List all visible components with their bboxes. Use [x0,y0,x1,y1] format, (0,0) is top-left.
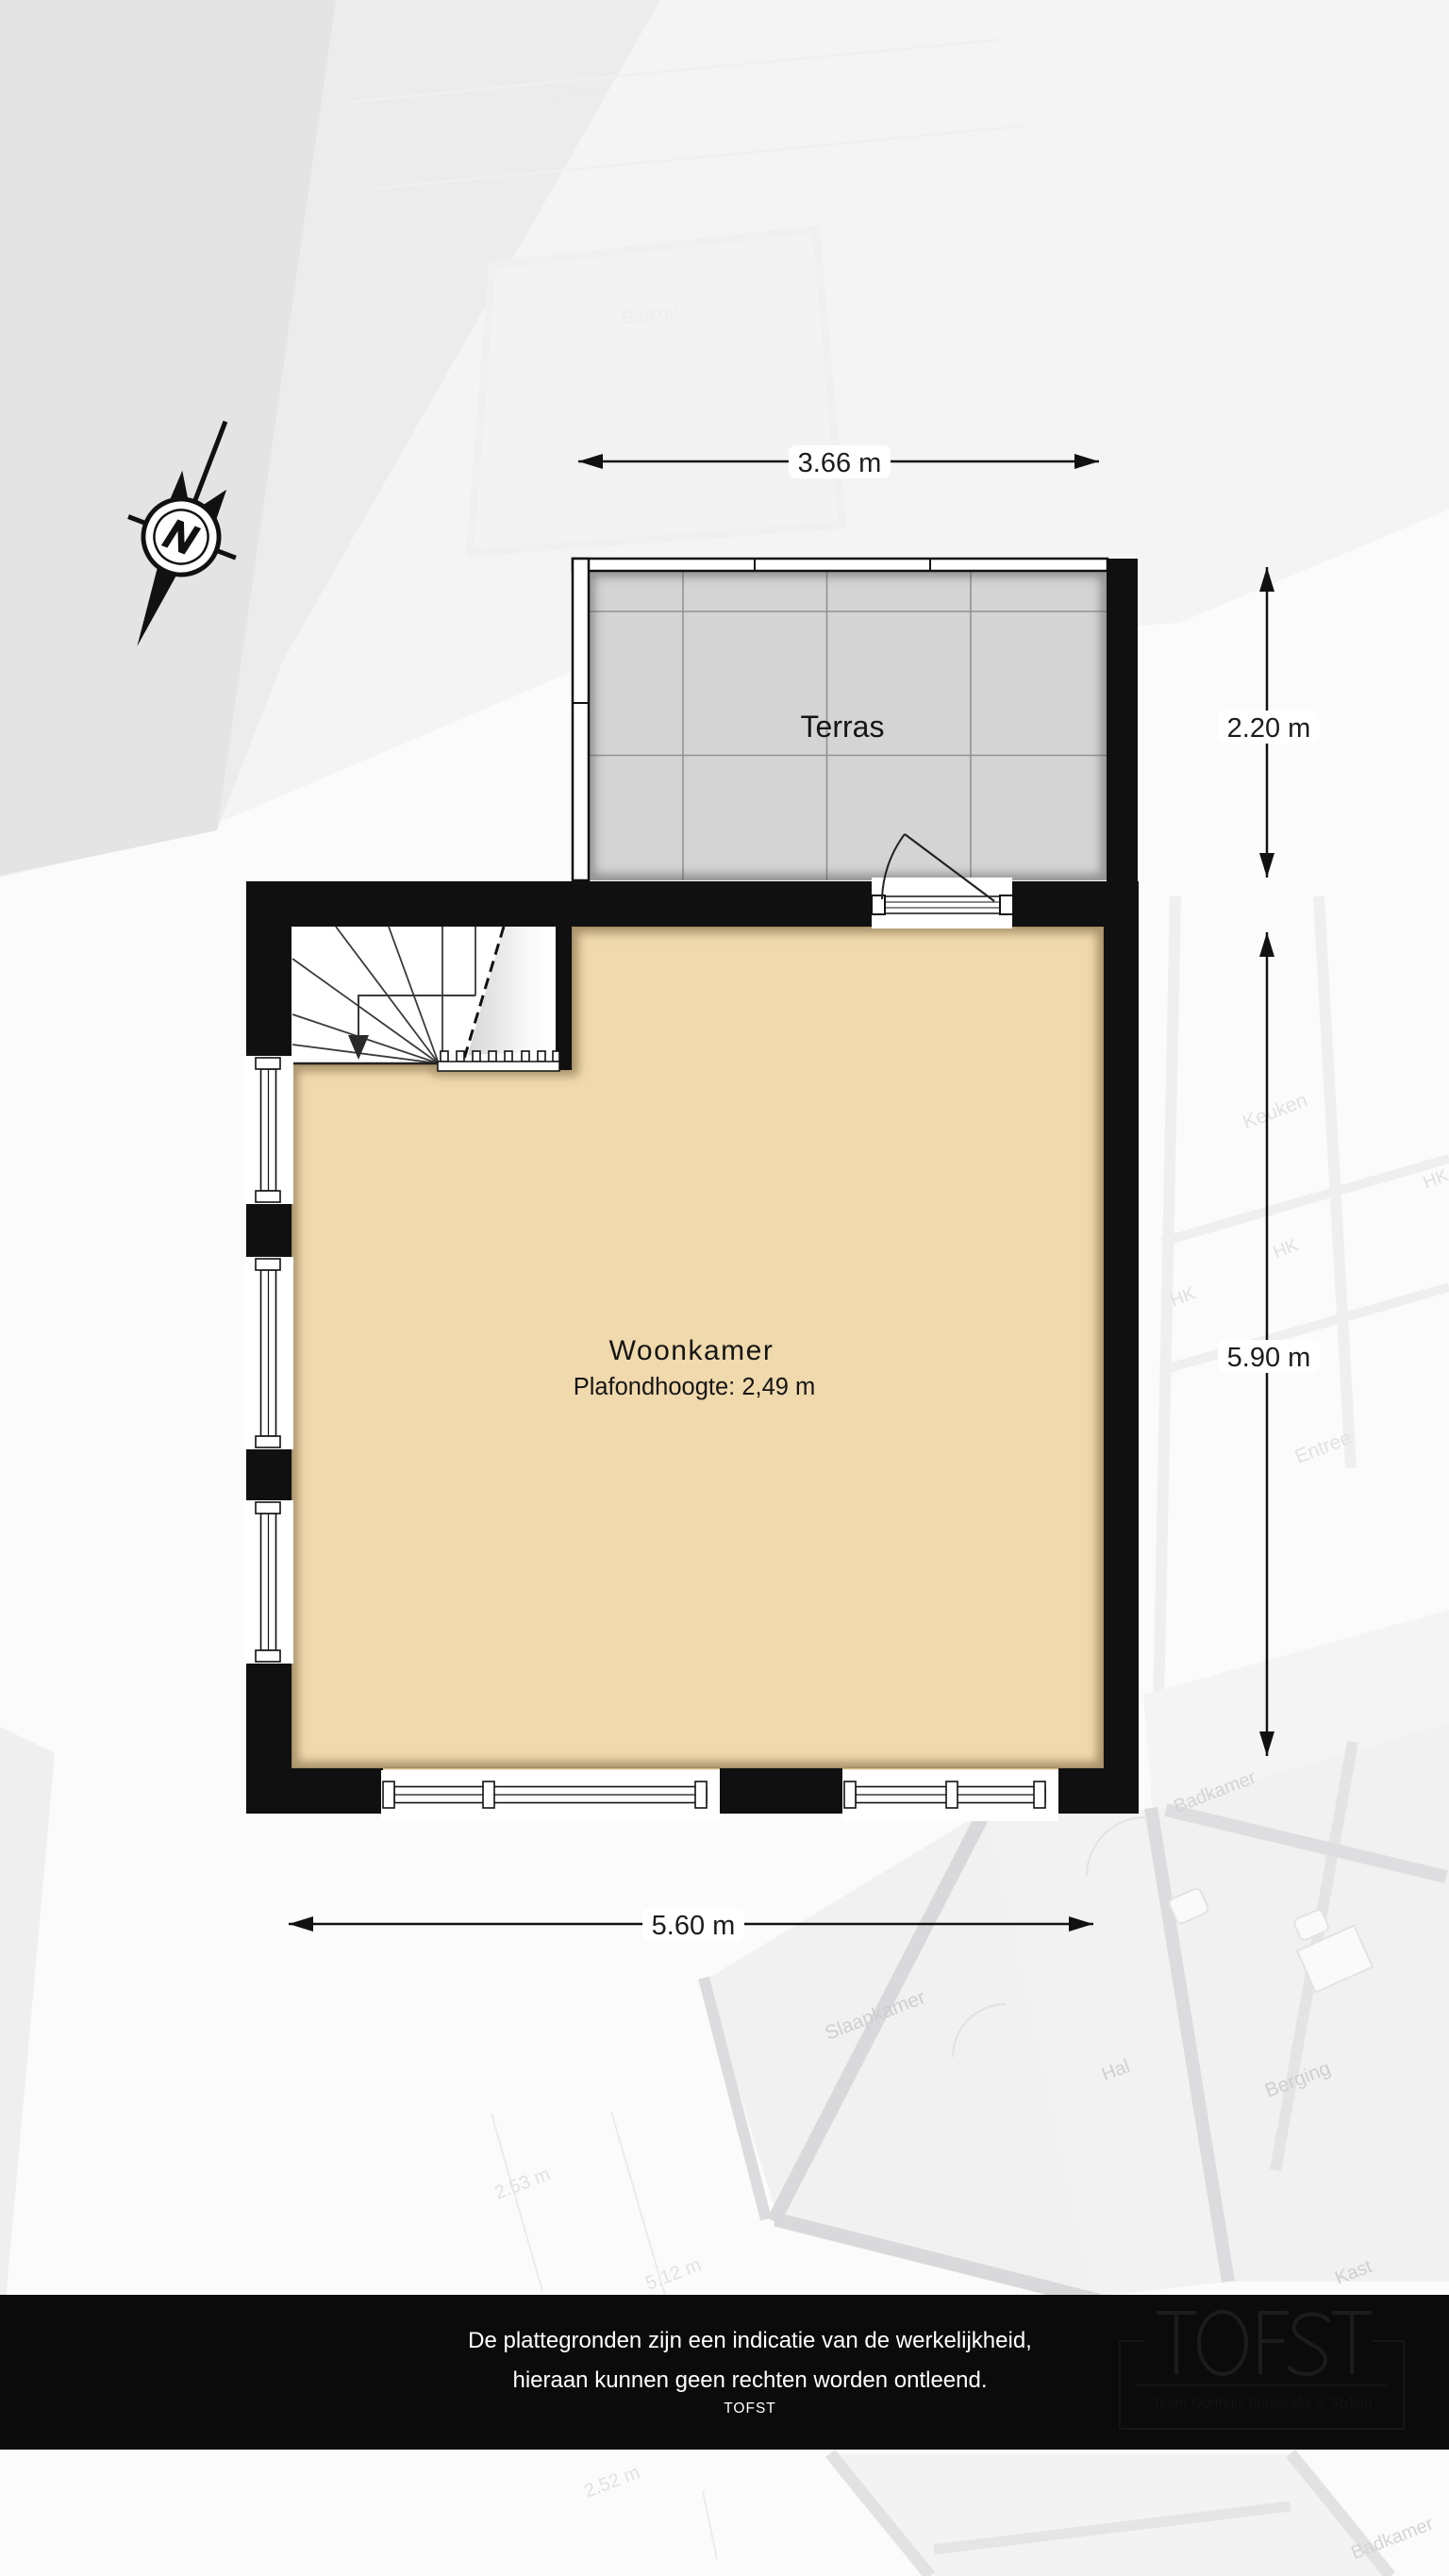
svg-text:5.90 m: 5.90 m [1227,1343,1311,1373]
svg-text:Woonkamer: Woonkamer [609,1335,774,1366]
svg-text:Terras: Terras [801,710,885,744]
svg-text:5.60 m: 5.60 m [652,1911,736,1941]
svg-text:De plattegronden zijn een indi: De plattegronden zijn een indicatie van … [468,2328,1032,2353]
svg-text:TOFST: TOFST [724,2400,776,2417]
svg-text:2.20 m: 2.20 m [1227,713,1311,744]
svg-text:Plafondhoogte: 2,49 m: Plafondhoogte: 2,49 m [574,1374,816,1400]
svg-text:hieraan kunnen geen rechten wo: hieraan kunnen geen rechten worden ontle… [512,2367,987,2393]
svg-text:Team Oorthuis Fotografie & Sty: Team Oorthuis Fotografie & Styling [1153,2395,1373,2411]
svg-text:3.66 m: 3.66 m [798,448,882,478]
